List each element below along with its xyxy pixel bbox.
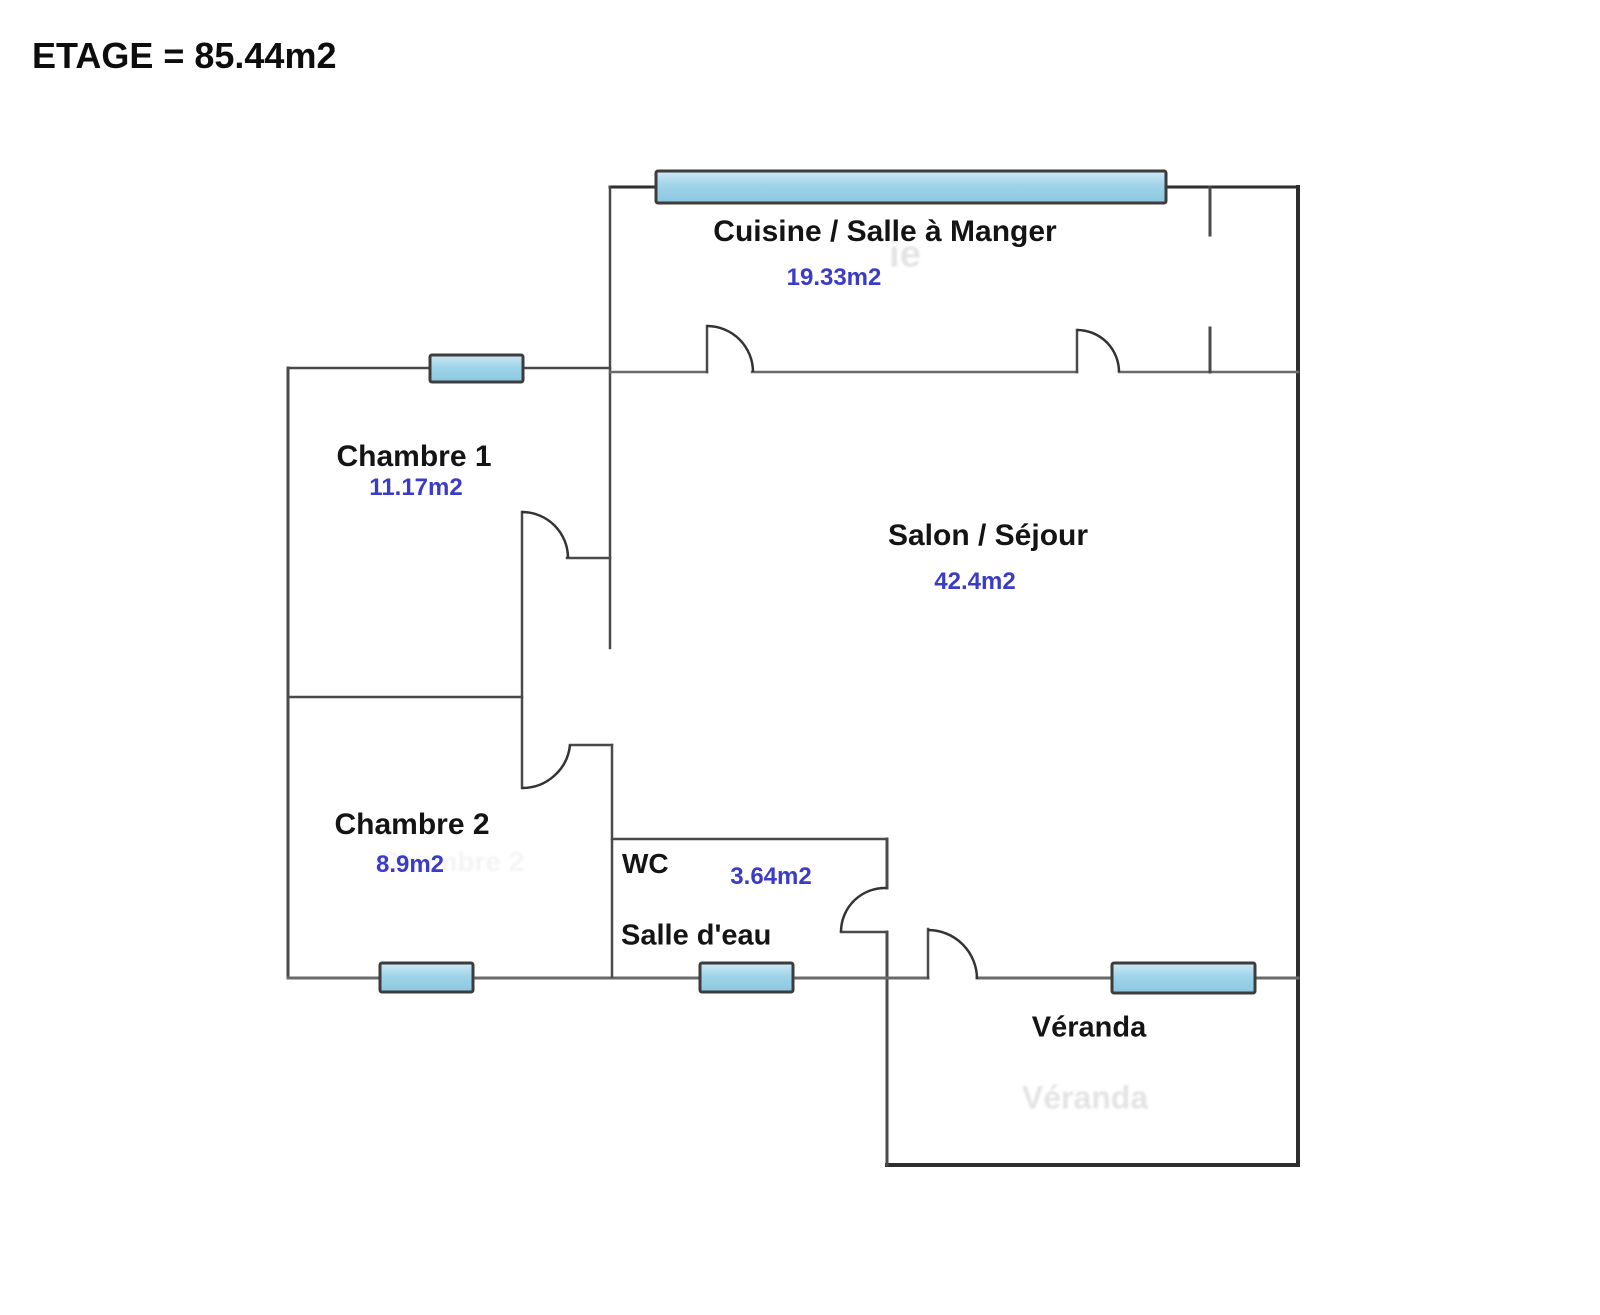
- door-arc-cuisine-2: [1077, 330, 1119, 372]
- door-arc-chambre1: [522, 512, 568, 558]
- room-label-cuisine: Cuisine / Salle à Manger: [713, 215, 1056, 249]
- page-title: ETAGE = 85.44m2: [32, 35, 337, 77]
- room-label-salle-eau: Salle d'eau: [621, 920, 771, 953]
- window-salle-eau: [700, 963, 793, 992]
- area-value-chambre1: 11.17m2: [369, 474, 462, 502]
- room-label-wc: WC: [622, 848, 669, 880]
- floor-plan-drawing: [0, 0, 1600, 1315]
- area-value-salon: 42.4m2: [934, 568, 1015, 596]
- room-label-veranda: Véranda: [1032, 1012, 1146, 1045]
- floor-plan: ie Chambre 2 Véranda ETAGE = 85.44m2 Cui…: [0, 0, 1600, 1315]
- room-label-chambre2: Chambre 2: [334, 808, 489, 842]
- window-chambre2: [380, 963, 473, 992]
- room-label-salon: Salon / Séjour: [888, 519, 1088, 553]
- door-arc-wc: [841, 888, 887, 932]
- window-veranda: [1112, 963, 1255, 993]
- area-value-chambre2: 8.9m2: [376, 851, 444, 879]
- window-chambre1: [430, 355, 523, 382]
- area-value-cuisine: 19.33m2: [787, 264, 882, 292]
- window-cuisine: [656, 171, 1166, 203]
- area-value-wc: 3.64m2: [730, 863, 811, 891]
- door-arc-cuisine-1: [707, 326, 753, 372]
- room-label-chambre1: Chambre 1: [336, 440, 491, 474]
- watermark-veranda: Véranda: [1022, 1080, 1148, 1117]
- door-arc-chambre2: [522, 745, 570, 788]
- door-arc-veranda: [928, 930, 977, 979]
